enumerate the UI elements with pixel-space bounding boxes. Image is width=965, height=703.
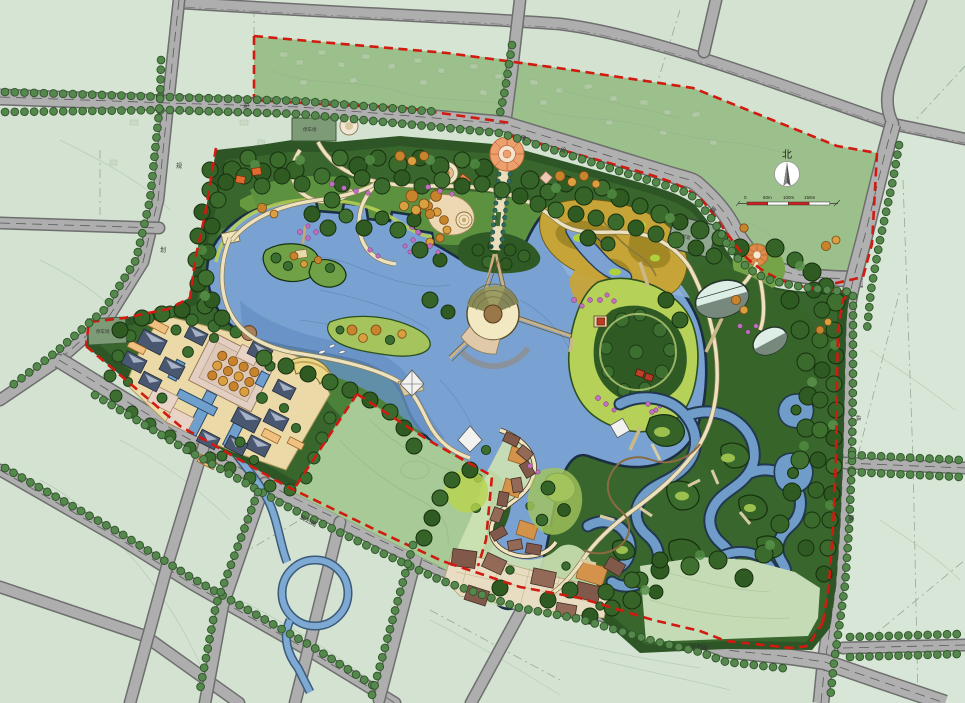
svg-text:停车场: 停车场: [96, 328, 110, 335]
svg-text:50m: 50m: [763, 195, 772, 200]
svg-text:150m: 150m: [804, 195, 816, 200]
svg-text:迎: 迎: [243, 102, 249, 110]
svg-text:100m: 100m: [783, 195, 795, 200]
svg-text:路: 路: [847, 515, 855, 521]
svg-text:划: 划: [160, 246, 166, 254]
svg-text:纬: 纬: [854, 415, 862, 421]
svg-text:规: 规: [176, 162, 182, 170]
svg-text:北: 北: [782, 149, 792, 161]
